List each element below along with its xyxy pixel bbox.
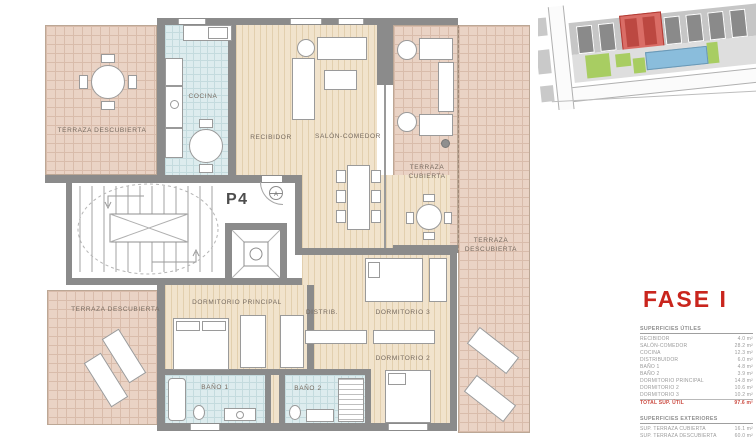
- staircase: [72, 178, 224, 280]
- unit-cell: [663, 16, 682, 46]
- fridge: [165, 58, 183, 86]
- desk: [429, 258, 447, 302]
- terrace-chair: [423, 232, 435, 240]
- unit-cell: [576, 25, 595, 55]
- label-bano-1: BAÑO 1: [190, 383, 240, 392]
- shower: [338, 378, 364, 422]
- terrace-chair: [128, 75, 137, 89]
- terrace-chair: [444, 212, 452, 224]
- unit-cell: [707, 11, 726, 41]
- dining-chair: [371, 170, 381, 183]
- label-terraza-right: TERRAZA DESCUBIERTA: [461, 236, 521, 254]
- outdoor-sofa: [438, 62, 454, 112]
- stove: [208, 27, 228, 39]
- utiles-title: SUPERFICIES ÚTILES: [640, 326, 753, 334]
- wall-bedrooms-north: [300, 248, 457, 255]
- window-salon-1: [290, 19, 322, 24]
- dining-chair: [371, 190, 381, 203]
- unit-label: P4: [226, 191, 249, 209]
- terrace-chair: [423, 194, 435, 202]
- sofa-chaise: [292, 58, 315, 120]
- wardrobe: [280, 315, 304, 368]
- bath-sink: [306, 409, 334, 422]
- dining-table: [347, 165, 370, 230]
- window-salon-2: [338, 19, 364, 24]
- outdoor-chair: [397, 40, 417, 60]
- outdoor-sofa: [419, 38, 453, 60]
- kitchen-cabinet: [165, 128, 183, 158]
- wardrobe: [240, 315, 266, 368]
- pillow: [176, 321, 200, 331]
- unit-cell: [685, 13, 704, 43]
- planter: [441, 139, 450, 148]
- table-row: DORMITORIO PRINCIPAL14.8 m²: [640, 378, 753, 385]
- table-row: DORMITORIO 210.6 m²: [640, 385, 753, 392]
- window-bedroom2: [388, 424, 428, 430]
- neighbor-building: [540, 85, 555, 102]
- coffee-table: [324, 70, 357, 90]
- dining-chair: [371, 210, 381, 223]
- window-kitchen: [178, 19, 206, 24]
- terrace-chair: [101, 54, 115, 63]
- terrace-boundary-dashed-line: [458, 25, 460, 253]
- label-dormitorio-principal: DORMITORIO PRINCIPAL: [187, 298, 287, 307]
- kitchen-chair: [199, 119, 213, 128]
- exteriores-title: SUPERFICIES EXTERIORES: [640, 416, 753, 424]
- terrace-table: [91, 65, 125, 99]
- covered-terrace-table: [416, 204, 442, 230]
- table-row: BAÑO 14.8 m²: [640, 364, 753, 371]
- terrace-right-floor: [458, 25, 530, 433]
- table-row: DORMITORIO 310.2 m²: [640, 392, 753, 399]
- toilet: [289, 405, 301, 420]
- lawn: [585, 53, 611, 78]
- dining-chair: [336, 190, 346, 203]
- table-row: COCINA12.3 m²: [640, 350, 753, 357]
- salon-terrace-glass-door: [384, 85, 386, 248]
- pillow: [368, 262, 380, 278]
- table-row: RECIBIDOR4.0 m²: [640, 336, 753, 343]
- label-terraza-bottom-left: TERRAZA DESCUBIERTA: [58, 305, 173, 314]
- label-recibidor: RECIBIDOR: [236, 133, 306, 142]
- table-row: SUP. TERRAZA CUBIERTA16.1 m²: [640, 426, 753, 433]
- apartment-floor-plan: TERRAZA DESCUBIERTA COCINA RECIBIDOR SAL…: [40, 18, 532, 443]
- label-distribuidor: DISTRIB.: [297, 308, 347, 317]
- wall-bath2-east: [365, 375, 371, 423]
- side-table: [297, 39, 315, 57]
- floor-plan-page: TERRAZA DESCUBIERTA COCINA RECIBIDOR SAL…: [0, 0, 756, 443]
- sink-basin: [170, 100, 179, 109]
- label-salon-comedor: SALÓN-COMEDOR: [308, 132, 388, 141]
- kitchen-table: [189, 129, 223, 163]
- unit-cell: [598, 22, 617, 52]
- wall-bath2-west: [279, 375, 285, 423]
- neighbor-building: [538, 49, 552, 74]
- dining-chair: [336, 210, 346, 223]
- surface-areas-table: SUPERFICIES ÚTILES RECIBIDOR4.0 m² SALÓN…: [640, 326, 753, 443]
- table-row: DISTRIBUIDOR6.0 m²: [640, 357, 753, 364]
- phase-title: FASE I: [643, 286, 728, 313]
- table-row: SALÓN-COMEDOR28.2 m²: [640, 343, 753, 350]
- lawn: [706, 42, 719, 64]
- pillow: [388, 373, 406, 385]
- lawn: [615, 53, 631, 67]
- label-bano-2: BAÑO 2: [283, 384, 333, 393]
- wall-bath1-east: [265, 375, 271, 423]
- sofa: [317, 37, 367, 60]
- wall-bedrooms-east: [450, 248, 457, 430]
- sink-basin: [236, 411, 244, 419]
- table-row: BAÑO 23.9 m²: [640, 371, 753, 378]
- total-util-row: TOTAL SUP. ÚTIL97.6 m²: [640, 399, 753, 407]
- label-dormitorio-2: DORMITORIO 2: [368, 354, 438, 363]
- elevator-shaft: [232, 230, 280, 278]
- section-marker-a: A: [269, 186, 283, 200]
- wall-salon-east: [377, 25, 393, 85]
- wardrobe: [373, 330, 435, 344]
- window-bath1: [190, 424, 220, 430]
- bathtub: [168, 378, 186, 421]
- lawn: [633, 57, 647, 73]
- terrace-top-left-floor: [45, 25, 157, 175]
- wall-kitchen-west: [157, 25, 165, 175]
- wardrobe: [305, 330, 367, 344]
- neighbor-building: [538, 17, 548, 36]
- label-dormitorio-3: DORMITORIO 3: [368, 308, 438, 317]
- label-terraza-cubierta: TERRAZA CUBIERTA: [402, 163, 452, 181]
- terrace-chair: [101, 101, 115, 110]
- site-location-map: [538, 0, 756, 110]
- label-cocina: COCINA: [173, 92, 233, 101]
- table-row: SUP. TERRAZA DESCUBIERTA60.0 m²: [640, 433, 753, 440]
- outdoor-sofa: [419, 114, 453, 136]
- label-terraza-top-left: TERRAZA DESCUBIERTA: [47, 126, 157, 135]
- unit-cell: [729, 9, 748, 39]
- terrace-chair: [406, 212, 414, 224]
- wall-stair-corridor: [295, 175, 302, 255]
- terrace-chair: [79, 75, 88, 89]
- pillow: [202, 321, 226, 331]
- outdoor-chair: [397, 112, 417, 132]
- kitchen-chair: [199, 164, 213, 173]
- dining-chair: [336, 170, 346, 183]
- toilet: [193, 405, 205, 420]
